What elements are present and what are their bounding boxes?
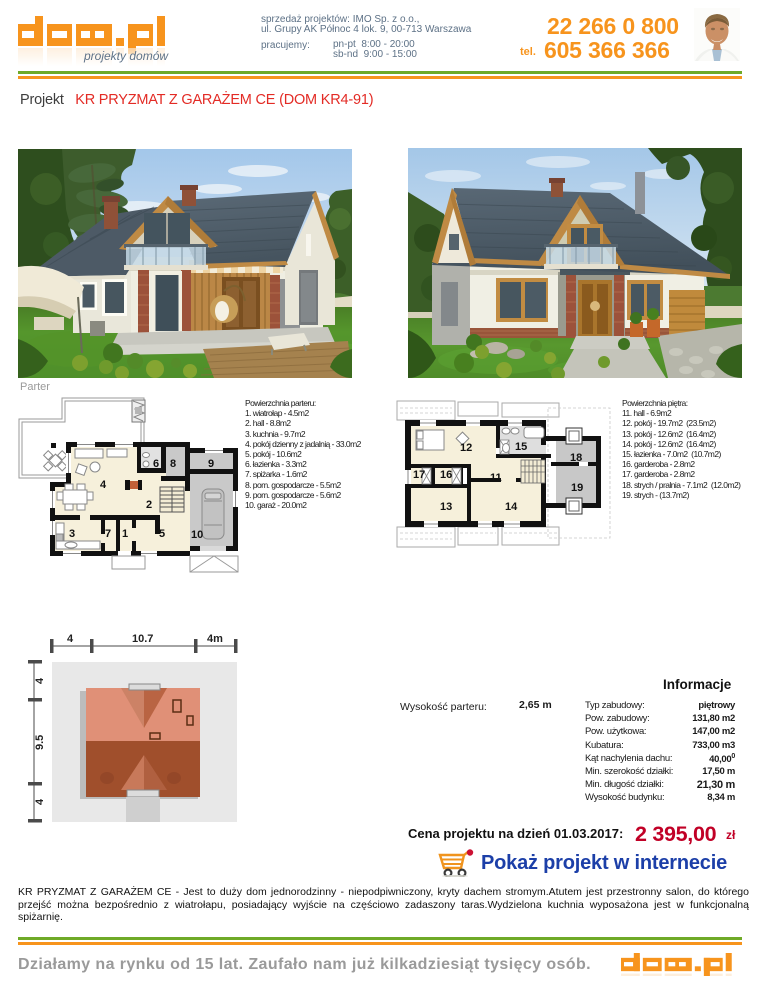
svg-text:12: 12 — [460, 442, 472, 454]
svg-text:11: 11 — [490, 472, 502, 484]
svg-text:4: 4 — [67, 633, 74, 645]
svg-text:16: 16 — [440, 469, 452, 481]
svg-text:1: 1 — [122, 528, 128, 540]
svg-text:3: 3 — [69, 528, 75, 540]
svg-text:8: 8 — [170, 458, 176, 470]
svg-text:6: 6 — [153, 458, 159, 470]
svg-text:13: 13 — [440, 501, 452, 513]
svg-text:5: 5 — [159, 528, 165, 540]
svg-text:18: 18 — [570, 452, 582, 464]
svg-text:7: 7 — [105, 528, 111, 540]
svg-text:4: 4 — [34, 798, 46, 805]
svg-text:15: 15 — [515, 441, 527, 453]
svg-text:9.5: 9.5 — [34, 735, 46, 750]
svg-text:9: 9 — [208, 458, 214, 470]
svg-text:4: 4 — [34, 677, 46, 684]
svg-text:4: 4 — [100, 479, 107, 491]
svg-text:19: 19 — [571, 482, 583, 494]
svg-text:14: 14 — [505, 501, 518, 513]
svg-text:17: 17 — [413, 469, 425, 481]
svg-text:10.7: 10.7 — [132, 633, 153, 645]
svg-text:2: 2 — [146, 499, 152, 511]
svg-text:4m: 4m — [207, 633, 223, 645]
svg-text:10: 10 — [191, 529, 203, 541]
